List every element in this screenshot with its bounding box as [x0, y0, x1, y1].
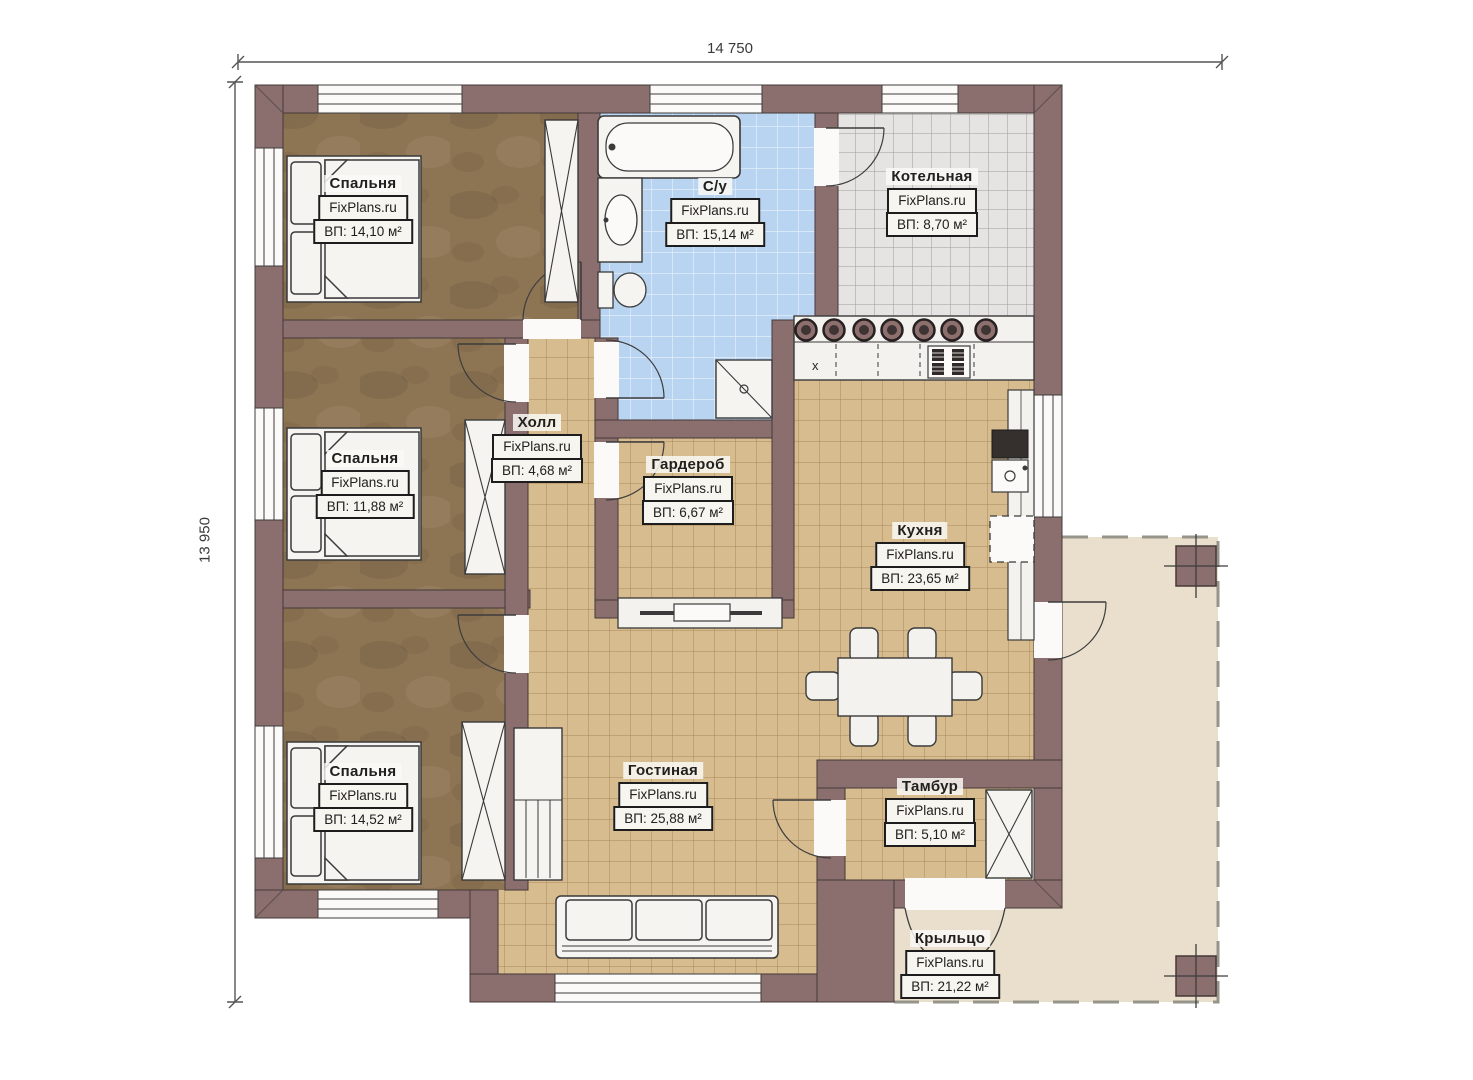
wall-wardrobe-east — [772, 320, 794, 600]
brand-box: FixPlans.ru — [318, 195, 408, 221]
room-label-living: Гостиная FixPlans.ru ВП: 25,88 м² — [613, 762, 713, 831]
bathroom-sink — [598, 178, 642, 262]
area-box: ВП: 14,52 м² — [313, 807, 413, 833]
dining-chair — [908, 628, 936, 662]
area-box: ВП: 25,88 м² — [613, 806, 713, 832]
area-box: ВП: 6,67 м² — [642, 500, 734, 526]
kitchen-appliance — [992, 430, 1028, 458]
cabinet-x-mark: x — [812, 358, 819, 373]
window-top-bathroom — [650, 85, 762, 113]
dining-table — [838, 658, 952, 716]
room-label-bathroom: С/у FixPlans.ru ВП: 15,14 м² — [665, 178, 765, 247]
room-name: Тамбур — [897, 778, 963, 795]
brand-box: FixPlans.ru — [670, 198, 760, 224]
window-left-bedroom3 — [255, 726, 283, 858]
wall-tambour-southwest — [817, 880, 894, 1002]
dimension-width-label: 14 750 — [701, 40, 759, 57]
room-label-hall: Холл FixPlans.ru ВП: 4,68 м² — [491, 414, 583, 483]
brand-box: FixPlans.ru — [318, 783, 408, 809]
brand-box: FixPlans.ru — [643, 476, 733, 502]
brand-box: FixPlans.ru — [905, 950, 995, 976]
dimension-height-label: 13 950 — [197, 511, 214, 569]
floor-plan-drawing: x — [0, 0, 1473, 1080]
brand-box: FixPlans.ru — [887, 188, 977, 214]
room-name: Спальня — [327, 450, 404, 467]
room-name: Холл — [513, 414, 562, 431]
dim-line-left — [227, 76, 243, 1008]
room-label-wardrobe: Гардероб FixPlans.ru ВП: 6,67 м² — [642, 456, 734, 525]
kitchen-sink — [992, 460, 1028, 492]
living-cabinet — [514, 728, 562, 880]
room-name: Гостиная — [623, 762, 703, 779]
sofa — [556, 896, 778, 958]
room-name: Гардероб — [646, 456, 729, 473]
kitchen-counter: x — [794, 316, 1034, 380]
area-box: ВП: 21,22 м² — [900, 974, 1000, 1000]
room-name: Спальня — [325, 175, 402, 192]
dining-chair — [948, 672, 982, 700]
window-left-bedroom1 — [255, 148, 283, 266]
room-label-bedroom-3: Спальня FixPlans.ru ВП: 14,52 м² — [313, 763, 413, 832]
dining-chair — [850, 628, 878, 662]
wardrobe-bedroom1 — [545, 120, 578, 302]
area-box: ВП: 8,70 м² — [886, 212, 978, 238]
window-bottom-bedroom3 — [318, 890, 438, 918]
dining-chair — [806, 672, 840, 700]
tv-console — [618, 598, 782, 628]
room-label-kitchen: Кухня FixPlans.ru ВП: 23,65 м² — [870, 522, 970, 591]
area-box: ВП: 5,10 м² — [884, 822, 976, 848]
room-name: Спальня — [325, 763, 402, 780]
room-label-boiler: Котельная FixPlans.ru ВП: 8,70 м² — [886, 168, 978, 237]
room-name: Кухня — [892, 522, 947, 539]
dining-chair — [850, 712, 878, 746]
room-label-porch: Крыльцо FixPlans.ru ВП: 21,22 м² — [900, 930, 1000, 999]
area-box: ВП: 14,10 м² — [313, 219, 413, 245]
window-top-boiler — [882, 85, 958, 113]
brand-box: FixPlans.ru — [875, 542, 965, 568]
brand-box: FixPlans.ru — [618, 782, 708, 808]
wall-bed2-bed3 — [283, 590, 530, 608]
window-right-kitchen — [1034, 395, 1062, 517]
floor-plan: x — [0, 0, 1473, 1080]
room-label-bedroom-2: Спальня FixPlans.ru ВП: 11,88 м² — [316, 450, 415, 519]
room-name: Котельная — [886, 168, 977, 185]
fridge — [990, 516, 1034, 562]
wall-bath-south — [595, 420, 794, 438]
area-box: ВП: 23,65 м² — [870, 566, 970, 592]
shower-tray — [716, 360, 772, 418]
room-label-bedroom-1: Спальня FixPlans.ru ВП: 14,10 м² — [313, 175, 413, 244]
wardrobe-bedroom3 — [462, 722, 505, 880]
area-box: ВП: 4,68 м² — [491, 458, 583, 484]
brand-box: FixPlans.ru — [885, 798, 975, 824]
bathtub — [598, 116, 740, 178]
toilet — [598, 272, 646, 308]
window-bottom-living — [555, 974, 761, 1002]
window-top-bedroom1 — [318, 85, 462, 113]
brand-box: FixPlans.ru — [492, 434, 582, 460]
dining-chair — [908, 712, 936, 746]
window-left-bedroom2 — [255, 408, 283, 520]
room-name: Крыльцо — [910, 930, 990, 947]
brand-box: FixPlans.ru — [320, 470, 410, 496]
area-box: ВП: 15,14 м² — [665, 222, 765, 248]
room-name: С/у — [698, 178, 732, 195]
closet-tambour — [986, 790, 1032, 878]
room-label-tambour: Тамбур FixPlans.ru ВП: 5,10 м² — [884, 778, 976, 847]
area-box: ВП: 11,88 м² — [316, 494, 415, 520]
stove — [928, 346, 970, 378]
